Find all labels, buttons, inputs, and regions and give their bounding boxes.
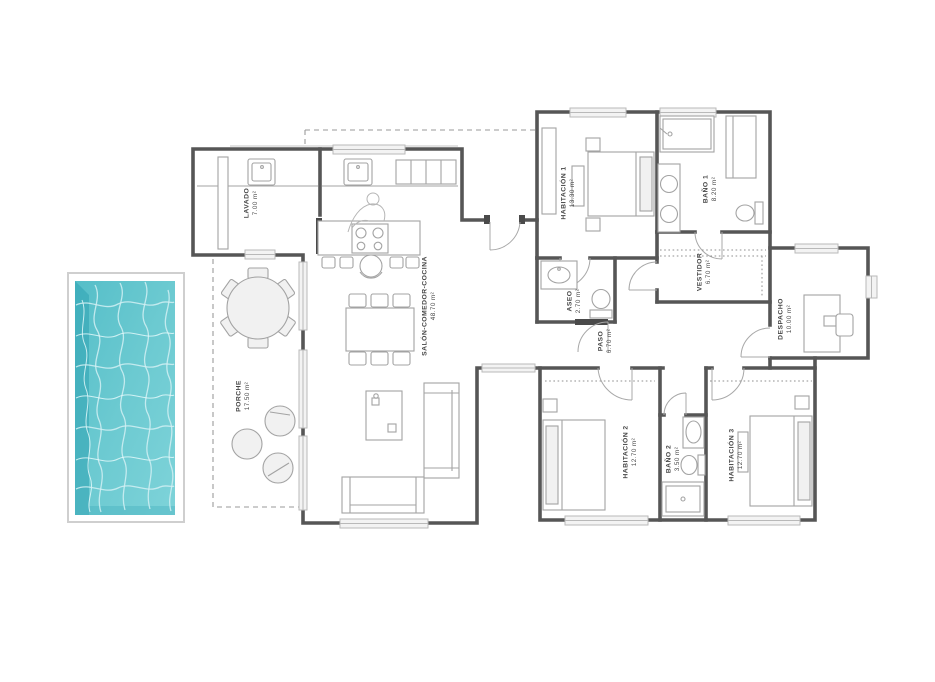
svg-text:HABITACIÓN 2: HABITACIÓN 2 [621, 425, 630, 478]
svg-text:BAÑO 2: BAÑO 2 [664, 445, 673, 473]
sofa-right [424, 383, 459, 478]
kitchen-island [318, 221, 420, 255]
svg-text:12.70 m²: 12.70 m² [631, 438, 638, 466]
svg-text:13.30 m²: 13.30 m² [569, 179, 576, 207]
window-despacho-top [795, 244, 838, 253]
label-porche: PORCHE 17.50 m² [236, 380, 252, 412]
svg-text:2.70 m²: 2.70 m² [575, 289, 582, 314]
bathroom-cabinet [726, 116, 756, 178]
coffee-table [366, 391, 402, 440]
svg-text:VESTIDOR: VESTIDOR [697, 253, 704, 291]
porch [213, 259, 302, 507]
svg-text:8.20 m²: 8.20 m² [711, 177, 718, 202]
pillow [798, 422, 810, 500]
svg-text:10.00 m²: 10.00 m² [786, 305, 793, 333]
slider-salon-west-2 [299, 350, 307, 428]
svg-text:3.50 m²: 3.50 m² [674, 447, 681, 472]
svg-text:17.50 m²: 17.50 m² [244, 382, 251, 410]
svg-text:48.70 m²: 48.70 m² [430, 292, 437, 320]
shower-bano2 [662, 482, 704, 516]
svg-text:BAÑO 1: BAÑO 1 [701, 175, 710, 203]
svg-text:HABITACIÓN 1: HABITACIÓN 1 [559, 166, 568, 219]
window-salon-bottom [340, 519, 428, 528]
window-habitacion2-bottom [565, 516, 648, 525]
pillow [546, 426, 558, 504]
pillow [640, 157, 652, 211]
window-kitchen-top [333, 145, 405, 154]
floor-plan-page: LAVADO 7.00 m² PORCHE 17.50 m² SALÓN-COM… [0, 0, 935, 682]
label-bano2: BAÑO 2 3.50 m² [664, 445, 682, 473]
window-habitacion1-top [570, 108, 626, 117]
toilet-bano2 [681, 455, 705, 475]
double-sink-counter [658, 164, 680, 232]
svg-text:6.70 m²: 6.70 m² [705, 260, 712, 285]
window-habitacion3-bottom [728, 516, 800, 525]
slider-salon-west-3 [299, 436, 307, 510]
svg-text:PORCHE: PORCHE [236, 380, 243, 412]
dining-set [346, 294, 414, 365]
front-door-gap [488, 213, 520, 226]
sofa-bottom [342, 477, 424, 513]
dining-table [346, 308, 414, 351]
wardrobe-habitacion1 [542, 128, 556, 214]
desk [804, 295, 840, 352]
sink-aseo [541, 261, 577, 289]
label-aseo: ASEO 2.70 m² [567, 289, 583, 314]
floor-plan-drawing: LAVADO 7.00 m² PORCHE 17.50 m² SALÓN-COM… [0, 0, 935, 682]
svg-text:7.00 m²: 7.00 m² [252, 191, 259, 216]
desk-chair [836, 314, 853, 336]
porch-table-set [220, 268, 296, 348]
svg-text:PASO: PASO [598, 331, 605, 352]
label-paso: PASO 6.70 m² [598, 329, 614, 354]
svg-text:6.70 m²: 6.70 m² [606, 329, 613, 354]
window-notch [482, 364, 535, 372]
label-lavado: LAVADO 7.00 m² [244, 188, 260, 218]
toilet-aseo [590, 290, 612, 319]
window-despacho-east [866, 276, 877, 298]
label-bano1: BAÑO 1 8.20 m² [701, 175, 719, 203]
svg-text:ASEO: ASEO [567, 290, 574, 311]
porch-poufs [232, 406, 295, 483]
door-lavado-porch [245, 250, 275, 259]
svg-text:12.70 m²: 12.70 m² [737, 441, 744, 469]
swimming-pool [68, 273, 184, 522]
svg-text:DESPACHO: DESPACHO [778, 298, 785, 340]
svg-text:LAVADO: LAVADO [244, 188, 251, 218]
window-salon-west-1 [299, 262, 307, 330]
svg-text:HABITACIÓN 3: HABITACIÓN 3 [727, 428, 736, 481]
pool-bottom-shadow [89, 506, 175, 515]
svg-text:SALÓN-COMEDOR-COCINA: SALÓN-COMEDOR-COCINA [420, 256, 429, 356]
